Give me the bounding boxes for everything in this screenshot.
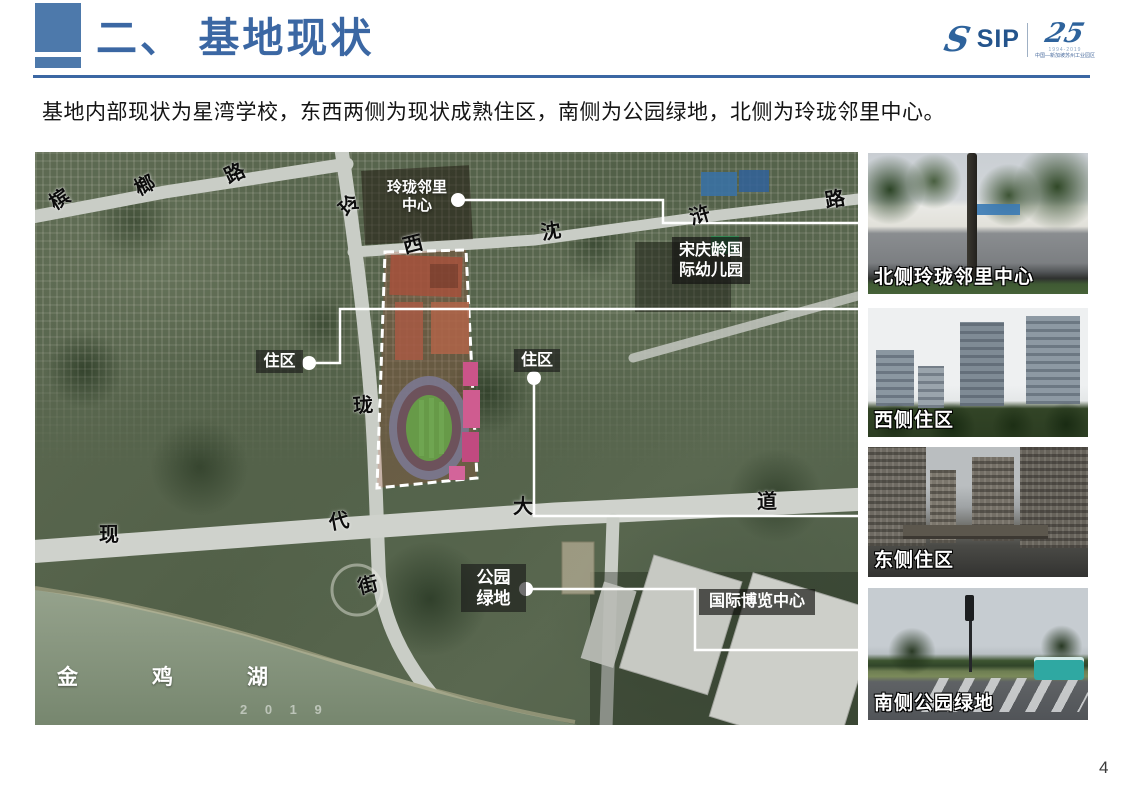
callout-kindergarten-line1: 宋庆龄国 [679, 241, 743, 261]
callout-expo-center: 国际博览中心 [699, 589, 815, 615]
callout-kindergarten: 宋庆龄国 际幼儿园 [672, 237, 750, 284]
anniversary-mark: 25 1994-2019 中国—新加坡苏州工业园区 [1035, 20, 1095, 59]
callout-park-line1: 公园 [477, 567, 511, 588]
road-label-xiandai-4: 道 [757, 492, 777, 512]
header-accent-square [35, 3, 81, 52]
callout-residential-west: 住区 [256, 350, 303, 373]
photo3-gate [903, 525, 1048, 539]
anniversary-25: 25 [1043, 20, 1087, 47]
road-label-xiandai-2: 代 [327, 510, 350, 533]
photo1-tree-trunk [967, 153, 977, 277]
callout-linglong-line2: 中心 [381, 197, 453, 215]
photo4-traffic-light [965, 595, 974, 621]
callout-linglong-line1: 玲珑邻里 [381, 179, 453, 197]
road-label-xiandai-1: 现 [99, 525, 119, 545]
site-boundary [377, 250, 480, 488]
slide: 二、 基地现状 S SIP 25 1994-2019 中国—新加坡苏州工业园区 … [0, 0, 1123, 794]
callout-park-line2: 绿地 [477, 588, 511, 609]
callout-park-green: 公园 绿地 [461, 564, 526, 612]
sip-wordmark: SIP [977, 27, 1020, 52]
lake-label-3: 湖 [247, 667, 268, 688]
road-label-xiandai-3: 大 [513, 497, 533, 517]
anniversary-org: 中国—新加坡苏州工业园区 [1035, 54, 1095, 59]
map-watermark: 2 0 1 9 [240, 702, 329, 717]
header-rule [33, 75, 1090, 78]
logo-divider [1027, 23, 1028, 57]
photo2-caption: 西侧住区 [874, 405, 954, 432]
photo4-bus [1034, 657, 1084, 680]
road-label-linglong-2: 珑 [352, 395, 373, 416]
photo-east-residential: 东侧住区 [868, 447, 1088, 577]
road-label-shenhu-3: 路 [823, 188, 846, 211]
lake-label-2: 鸡 [152, 667, 173, 688]
lake-label-1: 金 [57, 667, 78, 688]
photo1-sign [971, 204, 1019, 215]
page-title: 二、 基地现状 [96, 4, 374, 64]
callout-residential-east: 住区 [514, 349, 560, 372]
sip-swoosh-icon: S [942, 23, 974, 57]
sip-logo: S SIP 25 1994-2019 中国—新加坡苏州工业园区 [945, 20, 1095, 59]
photo-south-park: 南侧公园绿地 [868, 588, 1088, 720]
road-label-shenhu-1: 沈 [539, 220, 562, 243]
photo-west-residential: 西侧住区 [868, 308, 1088, 437]
page-number: 4 [1099, 758, 1108, 778]
slide-subtitle: 基地内部现状为星湾学校，东西两侧为现状成熟住区，南侧为公园绿地，北侧为玲珑邻里中… [42, 96, 945, 126]
photo1-caption: 北侧玲珑邻里中心 [874, 262, 1034, 289]
photo3-caption: 东侧住区 [874, 545, 954, 572]
callout-linglong-center: 玲珑邻里 中心 [381, 179, 453, 215]
photo-north-neighborhood-center: 北侧玲珑邻里中心 [868, 153, 1088, 294]
callout-kindergarten-line2: 际幼儿园 [679, 261, 743, 281]
photo4-caption: 南侧公园绿地 [874, 688, 994, 715]
satellite-map: 槟 榔 路 玲 西 沈 浒 路 珑 现 代 大 道 街 金 鸡 湖 2 0 1 … [35, 152, 858, 725]
header-accent-bar [35, 57, 81, 68]
